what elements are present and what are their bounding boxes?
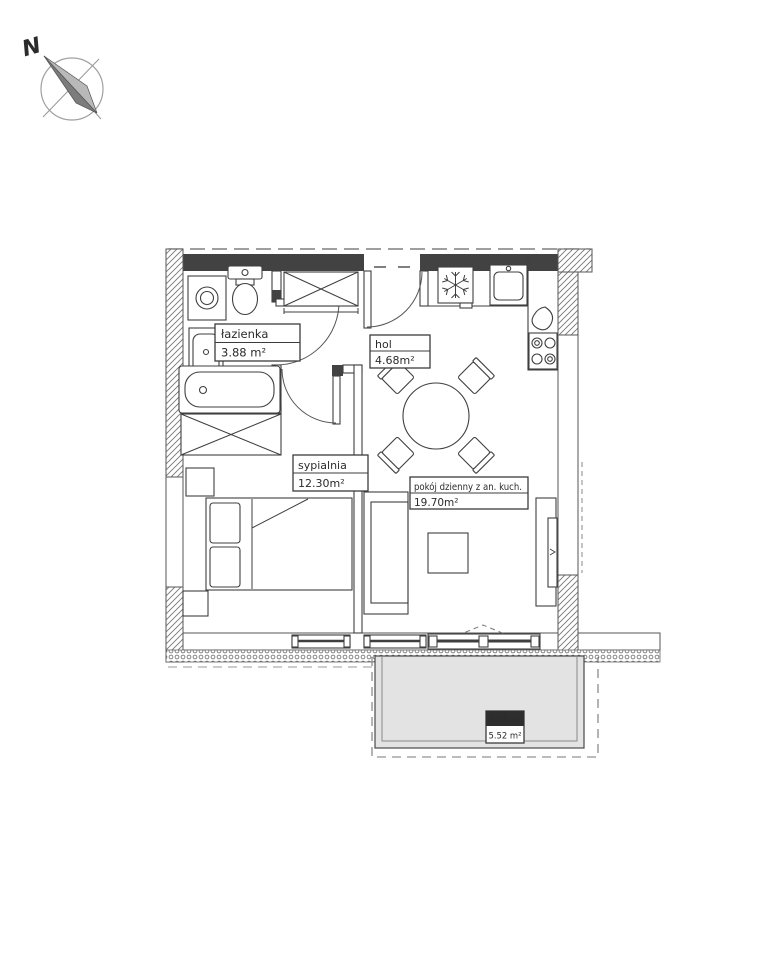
dining-set — [377, 357, 494, 473]
compass: N — [19, 33, 103, 120]
kettle-symbol — [532, 307, 552, 330]
room-area: 4.68m² — [375, 354, 415, 367]
pillow — [210, 503, 240, 543]
room-name: łazienka — [221, 327, 268, 341]
coffee-table — [428, 533, 468, 573]
room-area: 5.52 m² — [489, 732, 522, 742]
bedroom-door-leaf — [333, 376, 340, 424]
top-right-corner-wall — [558, 249, 592, 272]
windows — [292, 634, 540, 649]
balcony — [372, 656, 598, 757]
kitchen-sink — [490, 265, 527, 305]
chair — [457, 357, 494, 394]
wardrobe-bedroom — [181, 414, 281, 455]
room-label-lazienka: łazienka 3.88 m² — [215, 324, 300, 361]
right-wall-lower — [558, 575, 578, 662]
bedroom-door — [282, 369, 340, 424]
bedroom-door-swing-arc — [282, 369, 336, 423]
bottom-wall-continuation — [578, 633, 660, 650]
wardrobe-hall — [284, 272, 358, 314]
pillow — [210, 547, 240, 587]
room-area: 19.70m² — [414, 497, 459, 509]
dining-table — [403, 383, 469, 449]
room-label-sypialnia: sypialnia 12.30m² — [293, 455, 368, 491]
entrance-door-leaf — [364, 271, 371, 328]
chair — [457, 436, 494, 473]
entrance-east-stub-wall — [420, 271, 428, 306]
compass-north-label: N — [19, 33, 44, 62]
room-area: 12.30m² — [298, 477, 345, 490]
fridge — [438, 267, 473, 308]
room-name: balkon — [491, 716, 519, 726]
bedroom-window — [292, 635, 350, 648]
bedroom-living-divider-wall — [354, 365, 362, 633]
washing-machine — [188, 276, 226, 320]
bed — [206, 498, 352, 590]
wardrobe-rail — [284, 308, 358, 314]
right-wall-middle — [558, 335, 578, 575]
living-room-furniture — [364, 492, 557, 614]
floor-plan-page: N — [0, 0, 768, 970]
floor-plan-canvas: N — [0, 0, 768, 970]
balcony-slab — [375, 656, 584, 748]
chair — [377, 436, 414, 473]
living-room-window — [364, 635, 426, 648]
room-label-balkon: balkon 5.52 m² — [486, 711, 524, 743]
tv-cabinet — [536, 498, 557, 606]
entrance-door — [364, 271, 422, 328]
nightstand — [183, 591, 208, 616]
bedroom-door-jamb — [332, 365, 343, 376]
sofa — [364, 492, 408, 614]
room-area: 3.88 m² — [221, 346, 266, 360]
room-label-pokoj-dzienny: pokój dzienny z an. kuch. 19.70m² — [410, 477, 528, 509]
bathtub — [179, 366, 280, 413]
stove — [529, 333, 557, 369]
north-arrow-icon-highlight — [44, 56, 97, 113]
tv — [548, 518, 557, 587]
toilet — [228, 266, 262, 315]
room-name: pokój dzienny z an. kuch. — [414, 481, 522, 493]
left-wall-upper — [166, 249, 183, 477]
balcony-door-window — [428, 634, 540, 649]
room-name: sypialnia — [298, 459, 347, 472]
entrance-door-swing-arc — [367, 272, 422, 327]
left-wall-middle — [166, 477, 183, 587]
top-wall-west — [183, 254, 364, 271]
room-name: hol — [375, 338, 392, 351]
right-wall-upper — [558, 272, 578, 335]
nightstand — [186, 468, 214, 496]
kitchen — [428, 257, 558, 370]
room-label-hol: hol 4.68m² — [370, 335, 430, 368]
